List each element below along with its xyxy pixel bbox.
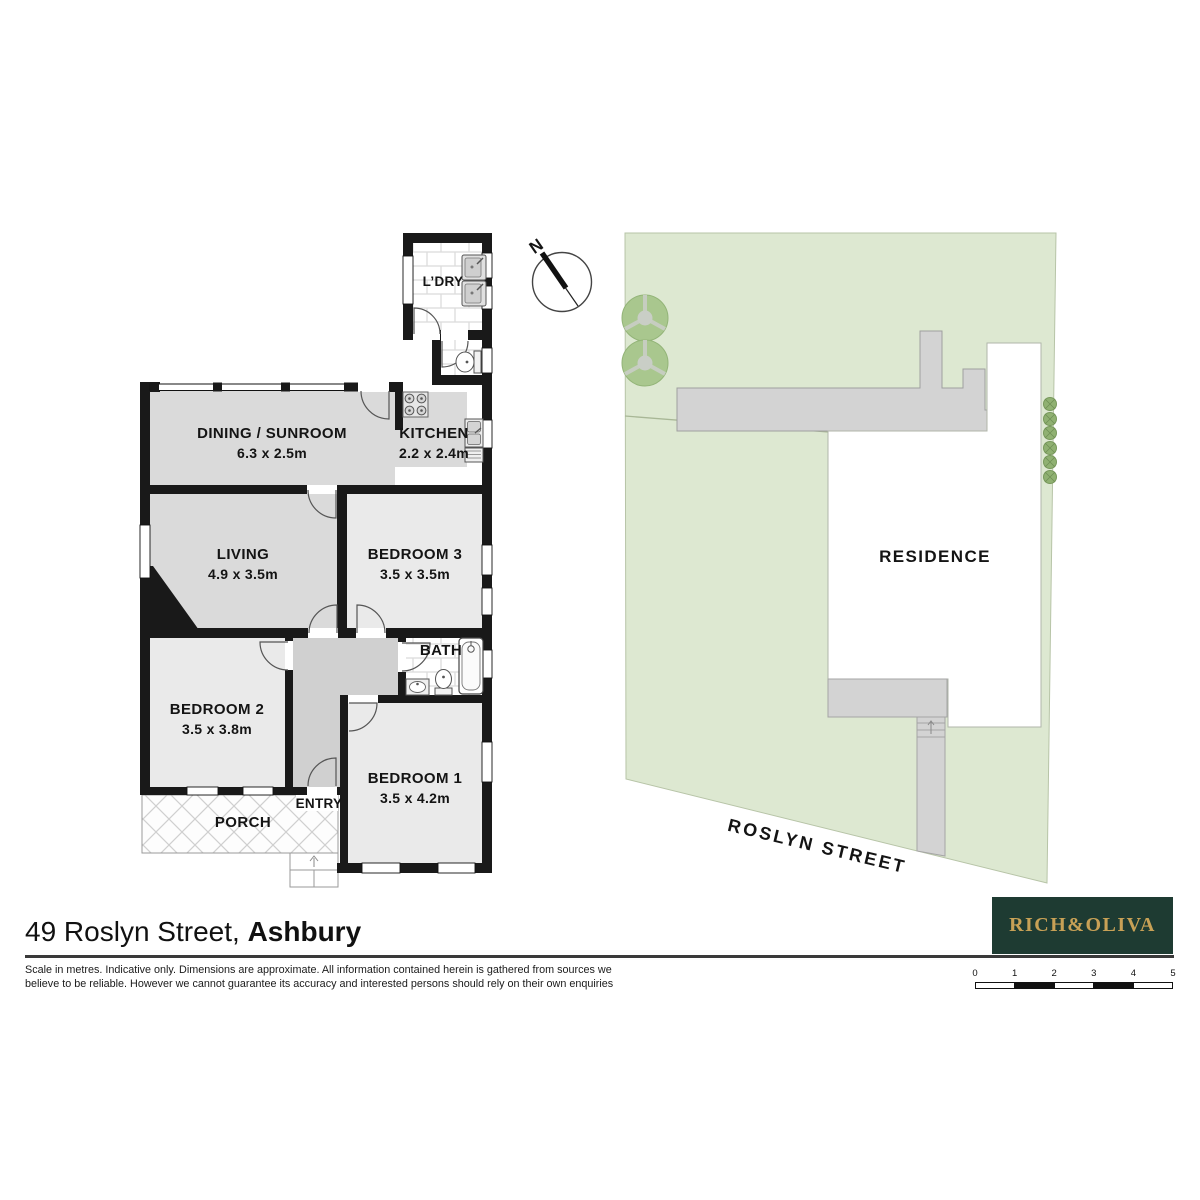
scale-bar-segments: [975, 982, 1173, 989]
tree-icon: [622, 295, 668, 341]
page-title: 49 Roslyn Street, Ashbury: [25, 916, 361, 948]
stove-icon: [403, 392, 428, 417]
kitchen-label: KITCHEN: [399, 425, 468, 442]
floorplan-page: RESIDENCE ROSLYN STREET N: [0, 0, 1200, 1200]
scale-segment: [1014, 983, 1053, 988]
compass-icon: N: [526, 235, 592, 311]
laundry-tubs: [462, 255, 486, 306]
bath-toilet: [435, 670, 452, 696]
scale-segment: [1133, 983, 1172, 988]
bedroom3-dims: 3.5 x 3.5m: [380, 566, 450, 582]
bath-label: BATH: [420, 642, 462, 659]
scale-tick: 5: [1170, 968, 1175, 979]
porch-label: PORCH: [215, 814, 271, 831]
bathtub-icon: [459, 638, 483, 694]
disclaimer-line1: Scale in metres. Indicative only. Dimens…: [25, 964, 613, 978]
residence-label: RESIDENCE: [879, 547, 991, 566]
bedroom2-label: BEDROOM 2: [170, 701, 264, 718]
dining-label: DINING / SUNROOM: [197, 425, 347, 442]
address-suburb: Ashbury: [248, 916, 362, 947]
scale-tick: 4: [1131, 968, 1136, 979]
scale-segment: [976, 983, 1014, 988]
dining-dims: 6.3 x 2.5m: [237, 445, 307, 461]
laundry-label: L’DRY: [423, 274, 464, 289]
scale-tick: 2: [1052, 968, 1057, 979]
entry-label: ENTRY: [296, 796, 343, 811]
disclaimer-line2: believe to be reliable. However we canno…: [25, 978, 613, 992]
kitchen-dims: 2.2 x 2.4m: [399, 445, 469, 461]
bedroom1-dims: 3.5 x 4.2m: [380, 790, 450, 806]
scale-tick: 3: [1091, 968, 1096, 979]
scale-segment: [1054, 983, 1093, 988]
bedroom2-dims: 3.5 x 3.8m: [182, 721, 252, 737]
site-plan: RESIDENCE ROSLYN STREET: [622, 233, 1057, 883]
living-label: LIVING: [217, 546, 269, 563]
scale-segment: [1093, 983, 1132, 988]
disclaimer-text: Scale in metres. Indicative only. Dimens…: [25, 964, 613, 991]
dining-windows: [150, 383, 358, 392]
agency-logo-text: RICH&OLIVA: [1009, 914, 1156, 937]
agency-logo: RICH&OLIVA: [992, 897, 1173, 954]
floor-plan: L’DRY DINING / SUNROOM 6.3 x 2.5m KITCHE…: [140, 233, 492, 887]
porch-steps: [290, 853, 338, 887]
scale-tick: 0: [972, 968, 977, 979]
scale-tick: 1: [1012, 968, 1017, 979]
scale-bar: 0 1 2 3 4 5: [975, 968, 1174, 992]
bedroom1-label: BEDROOM 1: [368, 770, 462, 787]
address-street: 49 Roslyn Street,: [25, 916, 248, 947]
site-walkway: [917, 717, 945, 856]
bedroom3-label: BEDROOM 3: [368, 546, 462, 563]
wc-toilet: [456, 351, 481, 373]
site-porch: [828, 679, 947, 717]
living-dims: 4.9 x 3.5m: [208, 566, 278, 582]
divider-rule: [25, 955, 1174, 958]
plan-canvas: RESIDENCE ROSLYN STREET N: [0, 0, 1200, 1200]
tree-icon: [622, 340, 668, 386]
bath-sink: [406, 679, 429, 695]
